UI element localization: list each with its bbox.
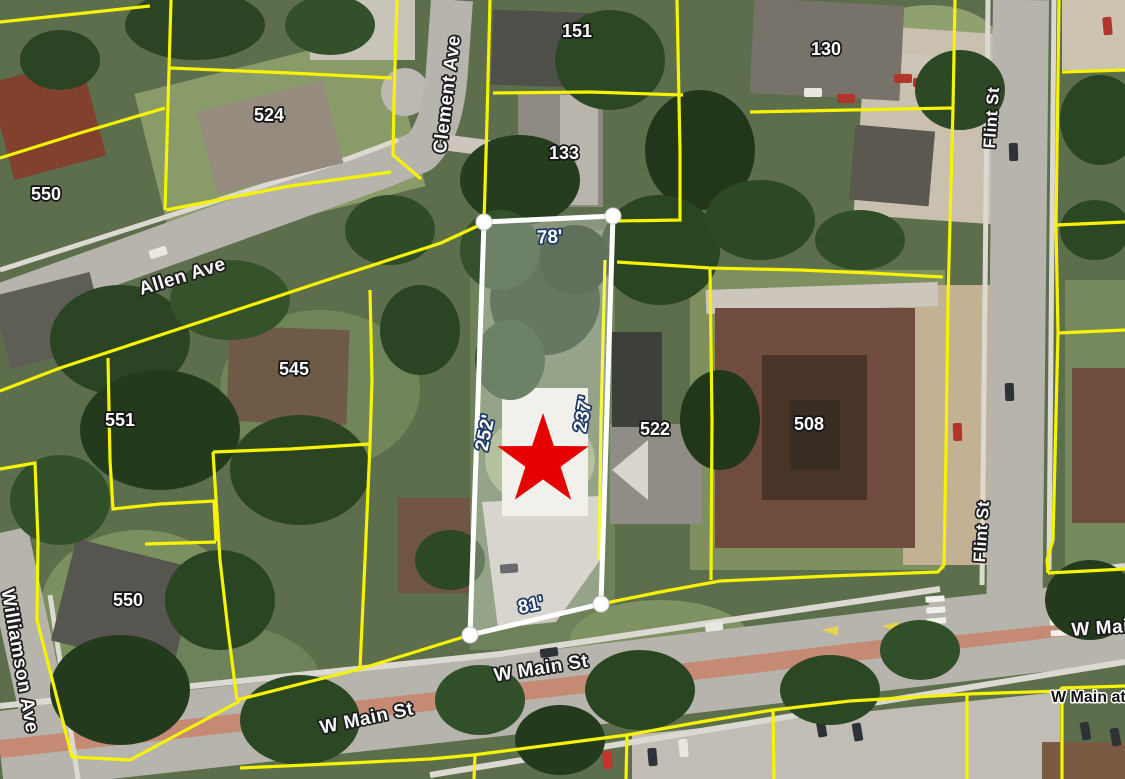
flint-st-road <box>1014 0 1021 645</box>
poi-label-w-main-at: W Main at <box>1051 689 1125 706</box>
parcel-boundary-line <box>773 710 774 779</box>
parcel-boundary-line <box>1062 70 1125 72</box>
parcel-vertex-handle[interactable] <box>593 596 609 612</box>
parcel-vertex-handle[interactable] <box>476 214 492 230</box>
parcel-boundary-line <box>626 735 627 779</box>
house-number: 550 <box>31 184 61 204</box>
house-number: 130 <box>811 39 841 59</box>
building-508-court <box>790 400 840 470</box>
house-number: 133 <box>549 143 579 163</box>
map-canvas[interactable]: 78' 252' 237' 81' Clement Ave Allen Ave … <box>0 0 1125 779</box>
parcel-boundary-line <box>474 755 475 779</box>
parcel-vertex-handle[interactable] <box>605 208 621 224</box>
parcel-vertex-handle[interactable] <box>462 627 478 643</box>
dimension-label-north: 78' <box>536 226 563 248</box>
house-number: 551 <box>105 410 135 430</box>
house-number: 545 <box>279 359 309 379</box>
house-number: 550 <box>113 590 143 610</box>
aerial-map[interactable]: 78' 252' 237' 81' Clement Ave Allen Ave … <box>0 0 1125 779</box>
building-roof <box>612 332 662 427</box>
house-number: 151 <box>562 21 592 41</box>
house-number: 508 <box>794 414 824 434</box>
building-roof <box>849 125 935 207</box>
building-roof <box>1072 368 1125 523</box>
building-roof <box>1042 742 1125 779</box>
driveway <box>706 294 938 302</box>
house-number: 522 <box>640 419 670 439</box>
parcel-boundary-line <box>145 542 216 544</box>
house-number: 524 <box>254 105 284 125</box>
pavement-patch <box>1062 0 1125 70</box>
